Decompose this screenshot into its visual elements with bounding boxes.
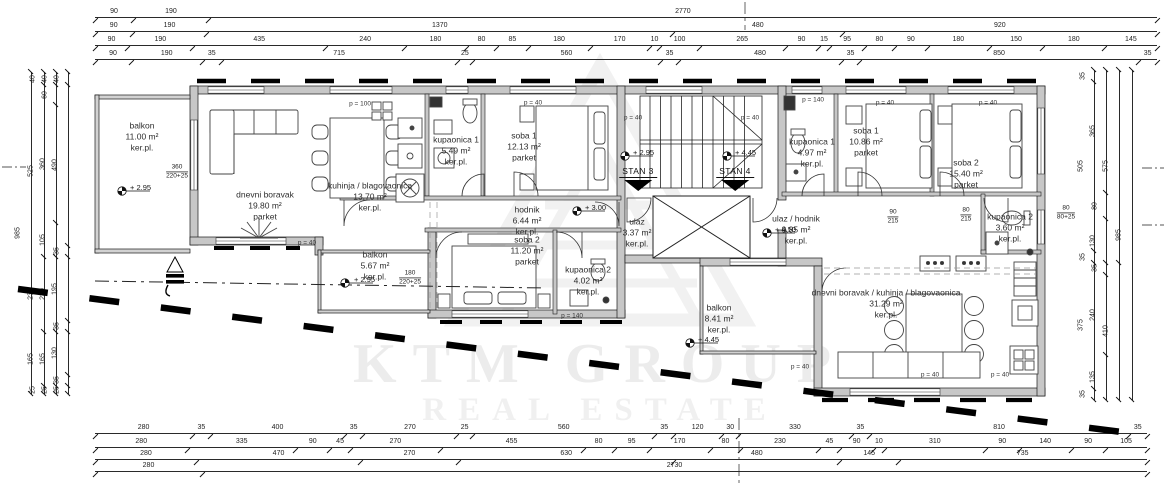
dimension-value: 40 [54, 75, 61, 83]
room-name: kupaonica 1 [433, 134, 479, 145]
dimension-value: 145 [1125, 36, 1137, 43]
dimension-segment: 35 [192, 421, 210, 434]
dimension-value: 90 [998, 438, 1006, 445]
dimension-value: 2770 [675, 8, 691, 15]
dimension-value: 95 [628, 438, 636, 445]
dimension-value: 400 [272, 424, 284, 431]
dimension-value: 90 [110, 8, 118, 15]
room-label-s3-soba1: soba 1 12.13 m² parket [507, 130, 541, 163]
dimension-segment: 100 [660, 33, 700, 46]
dimension-segment: 35 [1129, 421, 1147, 434]
dimension-value: 230 [40, 288, 47, 300]
dimension-value: 90 [1084, 438, 1092, 445]
dimension-value: 25 [30, 386, 37, 394]
dimension-segment: 365 [1094, 70, 1107, 192]
dimension-value: 95 [843, 36, 851, 43]
dimension-value: 135 [1090, 372, 1097, 384]
room-floor: ker.pl. [126, 143, 159, 154]
dimension-value: 35 [1144, 50, 1152, 57]
dimension-col-left-1: 985 [19, 72, 31, 394]
dimension-segment: 90 [785, 33, 818, 46]
unit-entry-arrow-icon [721, 180, 749, 191]
dimension-value: 490 [52, 159, 59, 171]
benchmark-icon [166, 257, 184, 296]
dimension-value: 90 [907, 36, 915, 43]
dimension-segment: 25 [56, 386, 69, 394]
elevator [653, 196, 750, 258]
dimension-segment: 330 [739, 421, 851, 434]
dimension-value: 280 [138, 424, 150, 431]
dimension-value: 35 [1080, 253, 1087, 261]
room-label-s3-dnevni: dnevni boravak 19.80 m² parket [236, 189, 294, 222]
room-floor: ker.pl. [565, 287, 611, 298]
dimension-value: 10 [875, 438, 883, 445]
opening-size-label: 90 215 [887, 208, 898, 225]
dimension-segment: 90 [95, 19, 132, 32]
dimension-segment: 90 [95, 33, 128, 46]
dimension-segment: 90 [95, 5, 133, 18]
dimension-value: 365 [1090, 125, 1097, 137]
room-area: 8.41 m² [705, 313, 734, 324]
dimension-segment: 35 [660, 47, 679, 60]
dimension-segment: 1370 [207, 19, 673, 32]
parapet-label: p = 140 [561, 313, 583, 320]
dimension-segment: 985 [19, 72, 32, 394]
dimension-value: 190 [164, 22, 176, 29]
dimension-value: 230 [774, 438, 786, 445]
dimension-segment: 190 [131, 47, 202, 60]
dimension-row-top-2: 901901370480920 [95, 19, 1157, 31]
dimension-col-left-3: 406036010523016525 [44, 72, 56, 394]
dimension-segment: 715 [221, 47, 457, 60]
dimension-value: 80 [722, 438, 730, 445]
room-floor: parket [949, 180, 983, 191]
dimension-value: 80 [875, 36, 883, 43]
dimension-value: 270 [389, 438, 401, 445]
parapet-label: p = 40 [876, 100, 894, 107]
dimension-value: 190 [161, 50, 173, 57]
dimension-value: 270 [404, 450, 416, 457]
dimension-segment: 435 [193, 33, 326, 46]
dimension-value: 180 [953, 36, 965, 43]
dimension-value: 45 [825, 438, 833, 445]
dimension-value: 560 [558, 424, 570, 431]
room-name: ulaz / hodnik [772, 213, 820, 224]
dimension-value: 480 [752, 22, 764, 29]
dimension-segment: 180 [1043, 33, 1105, 46]
dimension-value: 80 [1092, 202, 1099, 210]
dimension-value: 735 [1017, 450, 1029, 457]
dimension-value: 10 [651, 36, 659, 43]
room-area: 11.20 m² [511, 245, 544, 256]
room-label-s4-soba2: soba 2 15.40 m² parket [949, 157, 983, 190]
dimension-row-top-1: 901902770 [95, 5, 1157, 17]
dimension-segment: 35 [1138, 47, 1157, 60]
unit-label-stan-3: STAN 3 [619, 166, 657, 191]
room-label-s3-hodnik: hodnik 6.44 m² ker.pl. [513, 204, 542, 237]
dimension-segment: 190 [132, 19, 206, 32]
opening-size-label: 180 220+25 [399, 269, 421, 286]
dimension-value: 35 [208, 50, 216, 57]
room-floor: ker.pl. [623, 239, 652, 250]
dimension-value: 35 [197, 424, 205, 431]
room-area: 10.86 m² [849, 136, 883, 147]
parapet-label: p = 40 [524, 100, 542, 107]
dimension-segment: 80 [864, 33, 894, 46]
dimension-value: 575 [1103, 160, 1110, 172]
dimension-value: 90 [853, 438, 861, 445]
floor-plan-page: { "watermark": { "line1": "KTM GROUP", "… [0, 0, 1166, 489]
dimension-value: 375 [1078, 320, 1085, 332]
dimension-value: 280 [140, 450, 152, 457]
dimension-value: 35 [54, 376, 61, 384]
dimension-row-bottom-1: 28035400352702556035120303303581035 [95, 421, 1147, 433]
room-floor: parket [511, 257, 544, 268]
dimension-segment: 95 [830, 33, 864, 46]
dimension-segment: 240 [1094, 274, 1107, 354]
dimension-segment: 180 [528, 33, 590, 46]
opening-height: 215 [887, 218, 898, 226]
room-name: dnevni boravak [236, 189, 294, 200]
dimension-value: 560 [561, 50, 573, 57]
dimension-value: 810 [993, 424, 1005, 431]
dimension-value: 35 [1080, 72, 1087, 80]
dimension-value: 35 [856, 424, 864, 431]
dimension-value: 35 [847, 50, 855, 57]
dimension-value: 850 [993, 50, 1005, 57]
dimension-segment: 480 [679, 47, 841, 60]
dimension-value: 40 [30, 75, 37, 83]
parapet-label: p = 40 [791, 364, 809, 371]
parapet-label: p = 40 [979, 100, 997, 107]
dimension-segment: 35 [344, 421, 362, 434]
dimension-value: 45 [336, 438, 344, 445]
dimension-segment: 280 [95, 459, 202, 472]
parapet-label: p = 40 [624, 115, 642, 122]
dimension-segment: 195 [56, 257, 69, 321]
room-name: ulaz [623, 216, 652, 227]
dimension-segment: 35 [655, 421, 673, 434]
opening-width: 360 [166, 163, 188, 172]
opening-height: 80+25 [1057, 214, 1075, 222]
dimension-segment: 400 [211, 421, 345, 434]
dimension-segment: 490 [56, 85, 69, 245]
dimension-value: 25 [54, 386, 61, 394]
room-label-s3-kupaonica1: kupaonica 1 5.49 m² ker.pl. [433, 134, 479, 167]
dimension-value: 85 [508, 36, 516, 43]
room-area: 11.00 m² [126, 131, 159, 142]
room-label-s3-kupaonica2: kupaonica 2 4.02 m² ker.pl. [565, 264, 611, 297]
parapet-label: p = 140 [802, 97, 824, 104]
opening-height: 220+25 [399, 279, 421, 287]
parapet-label: p = 40 [741, 115, 759, 122]
opening-width: 80 [960, 206, 971, 215]
dimension-value: 985 [1116, 229, 1123, 241]
dimension-value: 470 [273, 450, 285, 457]
dimension-segment: 10 [649, 33, 660, 46]
dimension-value: 105 [1120, 438, 1132, 445]
dimension-value: 280 [143, 462, 155, 469]
opening-size-label: 80 80+25 [1057, 204, 1075, 221]
dimension-col-right-4: 985 [1120, 70, 1132, 400]
dimension-value: 435 [253, 36, 265, 43]
room-label-s4-soba1: soba 1 10.86 m² parket [849, 125, 883, 158]
dimension-value: 360 [40, 158, 47, 170]
dimension-segment: 90 [894, 33, 927, 46]
dimension-value: 190 [154, 36, 166, 43]
opening-width: 90 [887, 208, 898, 217]
unit-name: STAN 4 [716, 166, 754, 178]
room-floor: ker.pl. [328, 203, 412, 214]
dimension-value: 90 [309, 438, 317, 445]
dimension-value: 265 [736, 36, 748, 43]
dimension-value: 630 [560, 450, 572, 457]
sofa-stan3 [210, 110, 298, 174]
room-label-s4-kupaonica2: kupaonica 2 3.60 m² ker.pl. [987, 211, 1033, 244]
dimension-segment: 240 [326, 33, 405, 46]
dimension-segment: 560 [472, 421, 655, 434]
dimension-segment: 170 [590, 33, 649, 46]
room-area: 13.70 m² [328, 191, 412, 202]
dimension-value: 2730 [667, 462, 683, 469]
dimension-value: 335 [236, 438, 248, 445]
unit-name: STAN 3 [619, 166, 657, 178]
dimension-segment: 35 [841, 47, 860, 60]
dimension-value: 230 [28, 288, 35, 300]
dimension-segment: 35 [202, 47, 221, 60]
dimension-row-bottom-2: 2803359045270455809517080230459010310901… [95, 435, 1147, 447]
dimension-value: 25 [42, 386, 49, 394]
dimension-segment: 15 [818, 33, 830, 46]
room-label-s3-kuhinja: kuhinja / blagovaonica 13.70 m² ker.pl. [328, 180, 412, 213]
dimension-segment: 280 [95, 421, 192, 434]
room-area: 6.44 m² [513, 215, 542, 226]
room-area: 19.80 m² [236, 200, 294, 211]
dimension-segment: 80 [466, 33, 496, 46]
dimension-value: 410 [1103, 325, 1110, 337]
dimension-value: 100 [674, 36, 686, 43]
dimension-value: 240 [1090, 309, 1097, 321]
room-floor: ker.pl. [705, 325, 734, 336]
dimension-value: 180 [1068, 36, 1080, 43]
dimension-segment: 90 [95, 47, 131, 60]
dimension-value: 40 [42, 75, 49, 83]
room-name: dnevni boravak / kuhinja / blagovaonica [812, 287, 961, 298]
dimension-value: 505 [1078, 160, 1085, 172]
dimension-value: 180 [430, 36, 442, 43]
room-area: 12.13 m² [507, 141, 541, 152]
dimension-value: 25 [461, 424, 469, 431]
dimension-value: 240 [359, 36, 371, 43]
unit-label-stan-4: STAN 4 [716, 166, 754, 191]
dimension-segment: 25 [457, 47, 473, 60]
dimension-value: 480 [751, 450, 763, 457]
dimension-segment: 25 [457, 421, 472, 434]
level-label: + 2.95 [633, 148, 654, 157]
room-floor: ker.pl. [772, 236, 820, 247]
dimension-segment: 920 [843, 19, 1157, 32]
room-name: balkon [361, 249, 390, 260]
room-name: kupaonica 2 [565, 264, 611, 275]
dimension-segment: 85 [497, 33, 529, 46]
opening-height: 215 [960, 216, 971, 224]
room-floor: ker.pl. [789, 159, 835, 170]
dimension-value: 920 [994, 22, 1006, 29]
room-name: kupaonica 1 [789, 136, 835, 147]
dimension-value: 90 [109, 50, 117, 57]
room-label-s4-balkon: balkon 8.41 m² ker.pl. [705, 302, 734, 335]
room-area: 5.49 m² [433, 145, 479, 156]
dimension-col-right-2: 3658013035240135 [1094, 70, 1106, 400]
level-label: + 4.50 [775, 225, 796, 234]
level-label: + 4.45 [698, 335, 719, 344]
dimension-segment: 150 [989, 33, 1043, 46]
dimension-value: 35 [1080, 390, 1087, 398]
opening-size-label: 360 220+25 [166, 163, 188, 180]
dimension-value: 165 [40, 353, 47, 365]
dimension-value: 60 [42, 91, 49, 99]
dimension-segment: 180 [405, 33, 467, 46]
dimension-value: 455 [506, 438, 518, 445]
dimension-value: 90 [108, 36, 116, 43]
dimension-value: 35 [1134, 424, 1142, 431]
level-label: + 2.95 [130, 183, 151, 192]
room-label-s4-kupaonica1: kupaonica 1 4.97 m² ker.pl. [789, 136, 835, 169]
dimension-value: 35 [350, 424, 358, 431]
room-name: balkon [705, 302, 734, 313]
dimension-value: 90 [798, 36, 806, 43]
room-name: soba 1 [507, 130, 541, 141]
room-name: soba 2 [949, 157, 983, 168]
dimension-segment: 560 [473, 47, 660, 60]
dimension-segment: 135 [1094, 355, 1107, 400]
dimension-segment: 270 [363, 421, 457, 434]
dimension-value: 140 [1039, 438, 1051, 445]
unit-entry-arrow-icon [624, 180, 652, 191]
dimension-segment: 30 [722, 421, 739, 434]
room-name: soba 2 [511, 234, 544, 245]
dimension-value: 715 [333, 50, 345, 57]
room-area: 4.02 m² [565, 275, 611, 286]
level-label: + 4.45 [735, 148, 756, 157]
dimension-value: 35 [54, 247, 61, 255]
dimension-segment: 265 [699, 33, 785, 46]
dimension-value: 130 [1090, 235, 1097, 247]
dimension-value: 1370 [432, 22, 448, 29]
dimension-segment: 410 [1107, 263, 1120, 400]
dimension-value: 170 [674, 438, 686, 445]
parapet-label: p = 40 [298, 240, 316, 247]
dimension-segment: 190 [128, 33, 193, 46]
dimension-value: 105 [40, 234, 47, 246]
room-floor: ker.pl. [812, 310, 961, 321]
dimension-value: 270 [404, 424, 416, 431]
dimension-value: 165 [28, 353, 35, 365]
room-name: balkon [126, 120, 159, 131]
parapet-label: p = 40 [991, 372, 1009, 379]
dimension-row-bottom-3: 280470270630480145735 [95, 447, 1147, 459]
dimension-value: 120 [692, 424, 704, 431]
dimension-value: 25 [461, 50, 469, 57]
dimension-row-bottom-4: 2802730 [95, 459, 1147, 471]
dimension-value: 985 [15, 227, 22, 239]
parapet-label: p = 100 [349, 101, 371, 108]
dimension-row-top-3: 9019043524018080851801701010026590159580… [95, 33, 1157, 45]
dimension-segment: 810 [870, 421, 1129, 434]
dimension-value: 170 [614, 36, 626, 43]
dimension-row-top-4: 901903571525560354803585035 [95, 47, 1157, 59]
dimension-segment: 120 [673, 421, 721, 434]
opening-height: 220+25 [166, 173, 188, 181]
dimension-value: 280 [135, 438, 147, 445]
dimension-value: 30 [726, 424, 734, 431]
opening-size-label: 80 215 [960, 206, 971, 223]
dimension-value: 190 [165, 8, 177, 15]
dimension-segment: 2770 [209, 5, 1157, 18]
room-name: kuhinja / blagovaonica [328, 180, 412, 191]
room-area: 4.97 m² [789, 147, 835, 158]
room-floor: parket [507, 153, 541, 164]
dimension-value: 80 [478, 36, 486, 43]
room-area: 5.67 m² [361, 260, 390, 271]
room-name: hodnik [513, 204, 542, 215]
room-name: soba 1 [849, 125, 883, 136]
dimension-value: 35 [54, 322, 61, 330]
room-area: 15.40 m² [949, 168, 983, 179]
dimension-value: 15 [820, 36, 828, 43]
dimension-segment: 130 [1094, 219, 1107, 263]
opening-width: 180 [399, 269, 421, 278]
dimension-value: 330 [789, 424, 801, 431]
room-label-s3-balkon1: balkon 11.00 m² ker.pl. [126, 120, 159, 153]
dimension-segment: 130 [56, 332, 69, 375]
dimension-col-left-4: 4049035195351303525 [56, 72, 68, 394]
sofa-stan4 [838, 352, 980, 378]
dimension-value: 35 [1092, 265, 1099, 273]
dimension-value: 80 [595, 438, 603, 445]
dimension-value: 195 [52, 283, 59, 295]
room-label-s3-soba2: soba 2 11.20 m² parket [511, 234, 544, 267]
room-area: 3.37 m² [623, 227, 652, 238]
dimension-value: 35 [666, 50, 674, 57]
dimension-segment: 180 [927, 33, 989, 46]
dimension-value: 525 [28, 165, 35, 177]
dimension-value: 180 [553, 36, 565, 43]
room-name: kupaonica 2 [987, 211, 1033, 222]
dimension-segment: 35 [851, 421, 869, 434]
level-label: + 3.00 [585, 203, 606, 212]
dimension-segment: 145 [1105, 33, 1157, 46]
dimension-segment: 2730 [202, 459, 1147, 472]
dimension-segment: 985 [1120, 70, 1133, 400]
dimension-value: 480 [754, 50, 766, 57]
dimension-value: 35 [660, 424, 668, 431]
dimension-value: 145 [863, 450, 875, 457]
dimension-segment: 80 [1094, 192, 1107, 219]
room-label-s3-ulaz: ulaz 3.37 m² ker.pl. [623, 216, 652, 249]
level-label: + 2.95 [354, 275, 375, 284]
dimension-value: 130 [52, 347, 59, 359]
room-area: 31.29 m² [812, 298, 961, 309]
dimension-value: 90 [110, 22, 118, 29]
room-area: 3.60 m² [987, 222, 1033, 233]
room-floor: ker.pl. [433, 157, 479, 168]
parapet-label: p = 40 [921, 372, 939, 379]
room-floor: ker.pl. [987, 234, 1033, 245]
dimension-value: 310 [929, 438, 941, 445]
dimension-segment: 190 [133, 5, 209, 18]
dimension-segment: 480 [673, 19, 843, 32]
